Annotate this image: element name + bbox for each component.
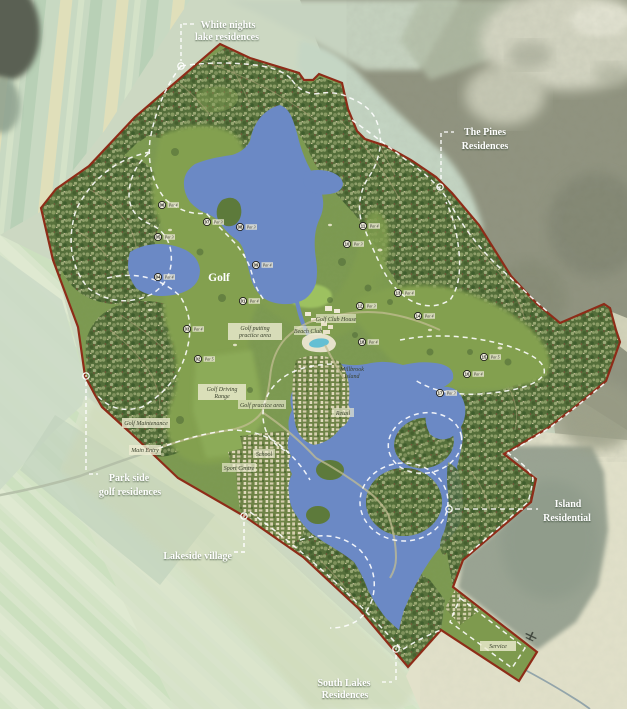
svg-text:The Pines: The Pines (464, 127, 506, 138)
svg-text:Par 4: Par 4 (193, 328, 203, 332)
svg-text:Par 3: Par 3 (353, 243, 363, 247)
svg-text:Retail: Retail (335, 411, 351, 417)
svg-text:17: 17 (438, 391, 443, 396)
svg-text:12: 12 (358, 304, 363, 309)
svg-text:Park side: Park side (109, 473, 150, 484)
svg-text:Par 4: Par 4 (369, 225, 379, 229)
svg-text:09: 09 (254, 263, 259, 268)
svg-text:Par 4: Par 4 (262, 264, 272, 268)
svg-text:Island: Island (344, 374, 361, 380)
svg-text:Golf practice area: Golf practice area (240, 402, 284, 409)
svg-text:01: 01 (241, 299, 246, 304)
svg-text:Main Entry: Main Entry (130, 448, 159, 454)
svg-text:Island: Island (555, 499, 582, 510)
svg-text:School: School (256, 452, 273, 458)
svg-text:13: 13 (396, 291, 401, 296)
svg-text:Service: Service (489, 644, 507, 650)
svg-text:Lakeside village: Lakeside village (163, 551, 232, 562)
svg-text:White nights: White nights (201, 20, 256, 31)
svg-text:Golf Maintenance: Golf Maintenance (124, 420, 168, 427)
svg-text:Par 3: Par 3 (164, 236, 174, 240)
svg-text:Par 4: Par 4 (164, 276, 174, 280)
svg-text:15: 15 (482, 355, 487, 360)
svg-text:lake residences: lake residences (195, 32, 259, 43)
svg-text:golf residences: golf residences (99, 487, 161, 498)
svg-text:Residences: Residences (322, 690, 369, 701)
svg-text:Golf Driving: Golf Driving (207, 386, 238, 393)
svg-text:06: 06 (160, 203, 165, 208)
svg-text:Sport Centre: Sport Centre (224, 466, 255, 472)
svg-text:18: 18 (360, 340, 365, 345)
svg-text:Par 5: Par 5 (204, 358, 214, 362)
svg-text:Par 5: Par 5 (490, 356, 500, 360)
svg-text:South Lakes: South Lakes (317, 678, 370, 689)
svg-text:07: 07 (205, 220, 210, 225)
svg-text:Par 4: Par 4 (168, 204, 178, 208)
svg-text:Millbrook: Millbrook (339, 367, 364, 373)
svg-text:16: 16 (465, 372, 470, 377)
svg-text:04: 04 (156, 275, 161, 280)
svg-text:Par 4: Par 4 (404, 292, 414, 296)
svg-text:Par 4: Par 4 (473, 373, 483, 377)
svg-text:Par 4: Par 4 (368, 341, 378, 345)
svg-text:Par 4: Par 4 (249, 300, 259, 304)
svg-text:Golf Club House: Golf Club House (316, 316, 357, 323)
svg-text:08: 08 (238, 225, 243, 230)
svg-text:03: 03 (185, 327, 190, 332)
svg-text:14: 14 (416, 314, 421, 319)
svg-text:Golf putting: Golf putting (240, 325, 269, 332)
svg-text:Residential: Residential (543, 513, 591, 524)
svg-text:Golf: Golf (208, 272, 230, 284)
svg-text:02: 02 (196, 357, 201, 362)
svg-text:05: 05 (156, 235, 161, 240)
svg-text:Par 4: Par 4 (424, 315, 434, 319)
svg-text:10: 10 (345, 242, 350, 247)
svg-text:Par 3: Par 3 (366, 305, 376, 309)
svg-text:Par 3: Par 3 (213, 221, 223, 225)
svg-text:practice area: practice area (238, 333, 271, 339)
svg-text:Range: Range (213, 394, 230, 400)
svg-text:Residences: Residences (462, 141, 509, 152)
svg-text:11: 11 (361, 224, 366, 229)
svg-text:Par 3: Par 3 (246, 226, 256, 230)
svg-text:Beach Club: Beach Club (294, 329, 322, 335)
svg-text:Par 3: Par 3 (446, 392, 456, 396)
